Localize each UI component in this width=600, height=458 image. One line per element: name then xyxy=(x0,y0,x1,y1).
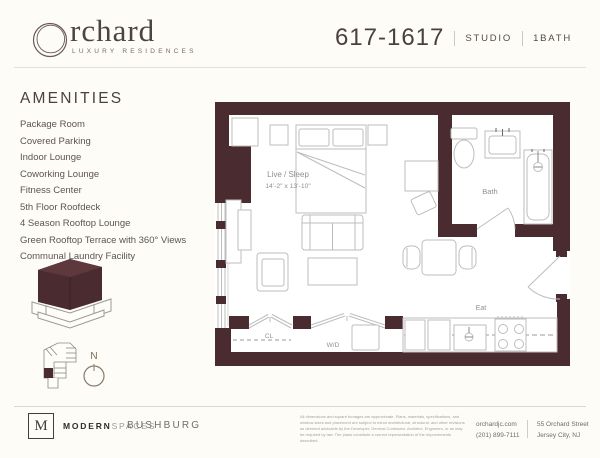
unit-type: STUDIO xyxy=(465,33,512,44)
contact-block: orchardjc.com (201) 899-7111 xyxy=(476,419,520,442)
floor-plan: Live / Sleep 14'-2" x 13'-10" Bath CL W/… xyxy=(213,88,573,368)
sofa xyxy=(302,215,363,250)
washer-dryer-unit xyxy=(352,325,379,350)
coffee-table xyxy=(308,258,357,285)
footer-divider xyxy=(527,420,528,438)
broker-name-bold: MODERN xyxy=(63,421,112,431)
developer-logo: BUSHBURG xyxy=(127,420,201,431)
address-city: Jersey City, NJ xyxy=(537,430,589,441)
address-block: 55 Orchard Street Jersey City, NJ xyxy=(537,419,589,442)
desk xyxy=(405,161,438,191)
brand-logo: rchard LUXURY RESIDENCES xyxy=(26,14,197,62)
kitchen-sink xyxy=(454,325,486,350)
amenity-item: Fitness Center xyxy=(20,183,215,200)
website: orchardjc.com xyxy=(476,419,520,430)
bed xyxy=(296,125,366,213)
bathtub xyxy=(524,149,552,224)
unit-location-marker xyxy=(44,368,53,378)
amenity-item: Covered Parking xyxy=(20,134,215,151)
amenity-item: 5th Floor Roofdeck xyxy=(20,200,215,217)
compass-icon: N xyxy=(76,348,112,392)
live-sleep-dims: 14'-2" x 13'-10" xyxy=(265,183,311,190)
stove xyxy=(495,316,526,351)
phone: (201) 899-7111 xyxy=(476,430,520,441)
amenity-item: Indoor Lounge xyxy=(20,150,215,167)
disclaimer-block: All dimensions and square footages are a… xyxy=(300,414,468,446)
unit-number: 617-1617 xyxy=(335,24,444,52)
address-street: 55 Orchard Street xyxy=(537,419,589,430)
nightstand-right xyxy=(368,125,387,145)
compass-n-label: N xyxy=(90,351,97,362)
bath-sink xyxy=(485,128,520,158)
amenities-title: AMENITIES xyxy=(20,90,215,108)
wardrobe xyxy=(232,118,258,146)
live-sleep-label: Live / Sleep xyxy=(267,170,309,179)
disclaimer-text: All dimensions and square footages are a… xyxy=(300,414,468,444)
armchair xyxy=(257,253,288,291)
amenity-item: Green Rooftop Terrace with 360° Views xyxy=(20,233,215,250)
nightstand-left xyxy=(270,125,288,145)
orchard-o-icon xyxy=(26,14,74,62)
amenity-item: Coworking Lounge xyxy=(20,167,215,184)
eat-label: Eat xyxy=(476,305,487,312)
building-icon xyxy=(24,252,119,344)
divider xyxy=(522,31,523,46)
flyer-page: rchard LUXURY RESIDENCES 617-1617 STUDIO… xyxy=(0,0,600,458)
modern-spaces-m-icon: M xyxy=(28,413,54,439)
closet-label: CL xyxy=(265,333,274,340)
footer-rule xyxy=(14,406,586,407)
divider xyxy=(454,31,455,46)
kitchen xyxy=(403,316,557,352)
washer-dryer-label: W/D xyxy=(327,342,340,349)
header-rule xyxy=(14,67,586,68)
unit-bath: 1BATH xyxy=(533,33,572,44)
amenity-item: 4 Season Rooftop Lounge xyxy=(20,216,215,233)
amenities-section: AMENITIES Package Room Covered Parking I… xyxy=(20,90,215,266)
amenity-item: Package Room xyxy=(20,117,215,134)
amenities-list: Package Room Covered Parking Indoor Loun… xyxy=(20,117,215,266)
unit-info: 617-1617 STUDIO 1BATH xyxy=(335,24,572,52)
bath-label: Bath xyxy=(482,187,497,196)
brand-tagline: LUXURY RESIDENCES xyxy=(72,48,197,55)
brand-name: rchard xyxy=(70,14,197,48)
